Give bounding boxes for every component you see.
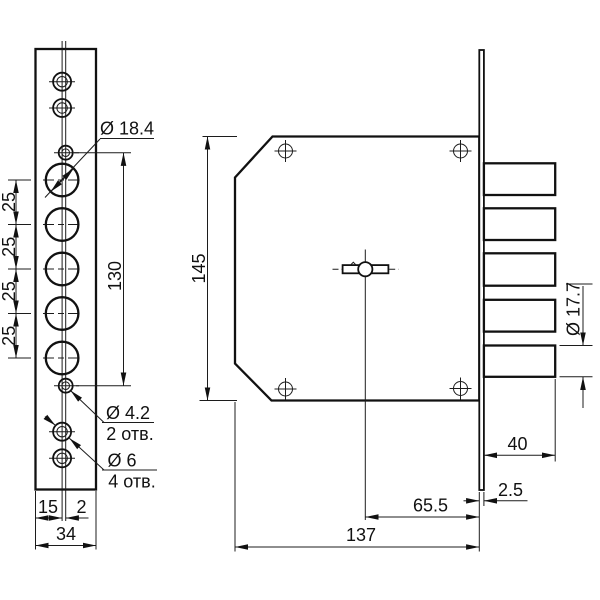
lock-body-side-view: 145 Ø 17.7 40 2.5 65.5 — [189, 50, 593, 552]
dimension-40: 40 — [484, 379, 555, 462]
dim-65-5: 65.5 — [413, 496, 448, 516]
dim-137: 137 — [346, 525, 376, 545]
dim-145: 145 — [189, 253, 209, 283]
dim-pitch-2: 25 — [0, 237, 19, 257]
dim-pitch-4: 25 — [0, 326, 19, 346]
faceplate-front-view: 25 25 25 25 130 Ø 18.4 Ø 4.2 2 отв. — [0, 41, 157, 550]
dim-2-5: 2.5 — [498, 480, 523, 500]
deadbolt-5 — [484, 346, 555, 377]
dim-dia-screw: Ø 6 — [107, 451, 136, 471]
dimension-bolt-dia: Ø 17.7 — [560, 282, 593, 408]
dim-15: 15 — [38, 497, 58, 517]
deadbolt-1 — [484, 163, 555, 195]
dim-130: 130 — [105, 261, 125, 291]
dim-dia-screw-count: 4 отв. — [108, 472, 155, 492]
dim-dia-small-count: 2 отв. — [106, 424, 153, 444]
dimension-2-5: 2.5 — [464, 480, 528, 552]
dim-34: 34 — [56, 524, 76, 544]
dimension-65-5: 65.5 — [365, 496, 479, 518]
deadbolt-3 — [484, 253, 555, 285]
deadbolt-2 — [484, 208, 555, 240]
technical-drawing-canvas: 25 25 25 25 130 Ø 18.4 Ø 4.2 2 отв. — [0, 0, 600, 600]
dim-40: 40 — [507, 434, 527, 454]
dim-bolt-dia: Ø 17.7 — [564, 282, 584, 336]
dim-pitch-3: 25 — [0, 281, 19, 301]
deadbolt-4 — [484, 300, 555, 332]
dim-pitch-1: 25 — [0, 192, 19, 212]
lock-drawing-svg: 25 25 25 25 130 Ø 18.4 Ø 4.2 2 отв. — [0, 0, 600, 600]
dim-2: 2 — [76, 497, 86, 517]
pitch-dimension-chain: 25 25 25 25 — [0, 180, 31, 358]
dim-dia-small: Ø 4.2 — [106, 403, 150, 423]
dim-dia-big: Ø 18.4 — [100, 119, 154, 139]
dimension-145: 145 — [189, 137, 209, 401]
dimension-137: 137 — [235, 402, 479, 552]
